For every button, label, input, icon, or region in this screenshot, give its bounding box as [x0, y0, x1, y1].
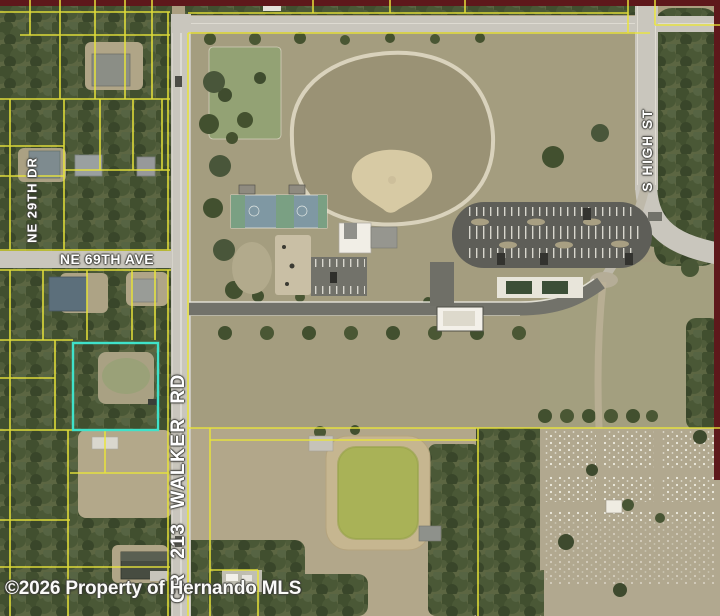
street-label-ne-29th-dr: NE 29TH DR: [25, 157, 40, 243]
cemetery: [544, 428, 716, 616]
small-parking-lot: [311, 257, 367, 296]
street-label-s-high-st: S HIGH ST: [639, 108, 655, 192]
aerial-basemap: [0, 0, 720, 616]
mls-watermark: ©2026 Property of Hernando MLS: [5, 578, 301, 600]
retention-pond: [326, 436, 430, 550]
street-label-ne-69th-ave: NE 69TH AVE: [60, 251, 154, 267]
parking-lot: [452, 202, 662, 268]
map-image[interactable]: NE 29TH DR NE 69TH AVE CR 213 WALKER RD …: [0, 0, 720, 616]
street-label-cr-213-walker-rd: CR 213 WALKER RD: [168, 373, 190, 603]
